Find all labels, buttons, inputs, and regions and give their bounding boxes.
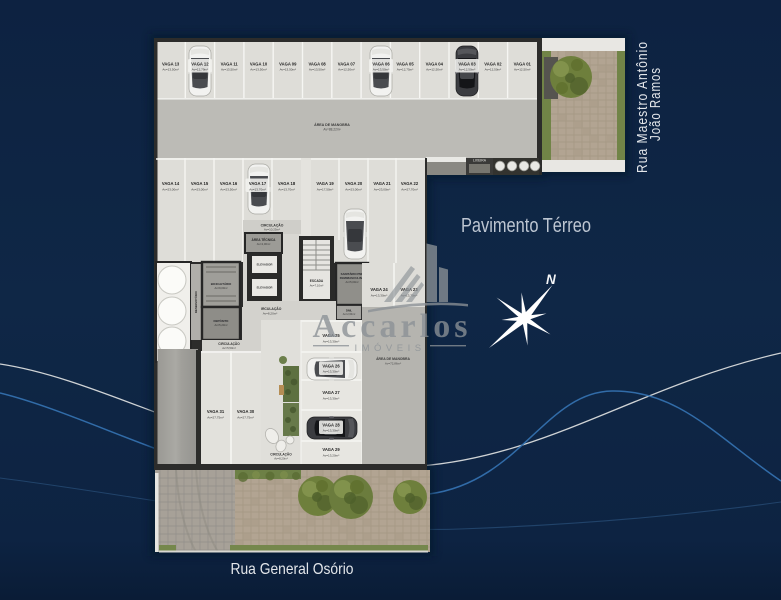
svg-text:VAGA 21: VAGA 21 bbox=[373, 181, 391, 186]
svg-text:Av=27,75m²: Av=27,75m² bbox=[237, 416, 253, 420]
svg-text:ELEVADOR: ELEVADOR bbox=[257, 263, 274, 267]
svg-text:Av=23,00m²: Av=23,00m² bbox=[345, 188, 361, 192]
svg-text:Av=12,50m²: Av=12,50m² bbox=[338, 68, 354, 72]
svg-text:VAGA 02: VAGA 02 bbox=[484, 62, 502, 67]
svg-text:João Ramos: João Ramos bbox=[648, 67, 664, 141]
svg-text:Av=88,22m²: Av=88,22m² bbox=[323, 128, 340, 132]
svg-text:VAGA 10: VAGA 10 bbox=[250, 62, 268, 67]
svg-text:VAGA 31: VAGA 31 bbox=[207, 409, 225, 414]
svg-text:Av=9,00m²: Av=9,00m² bbox=[214, 286, 227, 290]
svg-text:Av=13,50m²: Av=13,50m² bbox=[280, 68, 296, 72]
svg-text:Av=23,50m²: Av=23,50m² bbox=[220, 188, 236, 192]
svg-text:N: N bbox=[546, 272, 556, 287]
svg-text:CIRCULAÇÃO: CIRCULAÇÃO bbox=[259, 306, 282, 311]
svg-text:FEM/MASCULINO: FEM/MASCULINO bbox=[340, 276, 365, 280]
svg-text:DEPÓSITO: DEPÓSITO bbox=[214, 318, 230, 323]
svg-text:VAGA 29: VAGA 29 bbox=[322, 447, 340, 452]
svg-text:ÁREA DE MANOBRA: ÁREA DE MANOBRA bbox=[314, 122, 350, 127]
svg-text:BICICLETÁRIO: BICICLETÁRIO bbox=[211, 281, 232, 286]
svg-text:VAGA 06: VAGA 06 bbox=[372, 62, 390, 67]
svg-text:Av=13,30m²: Av=13,30m² bbox=[323, 397, 339, 401]
svg-text:Av=13,20m²: Av=13,20m² bbox=[323, 454, 339, 458]
svg-text:RESERVATÓRIO: RESERVATÓRIO bbox=[193, 290, 198, 313]
svg-text:VAGA 15: VAGA 15 bbox=[191, 181, 209, 186]
svg-text:Av=12,50m²: Av=12,50m² bbox=[459, 68, 475, 72]
svg-text:Av=12,50m²: Av=12,50m² bbox=[485, 68, 501, 72]
svg-text:Av=23,00m²: Av=23,00m² bbox=[191, 188, 207, 192]
svg-text:Av=5,00m²: Av=5,00m² bbox=[345, 280, 358, 284]
svg-text:VAGA 12: VAGA 12 bbox=[191, 62, 209, 67]
svg-text:VAGA 11: VAGA 11 bbox=[221, 62, 239, 67]
svg-text:Av=8,20m²: Av=8,20m² bbox=[263, 312, 278, 316]
svg-text:Av=27,70m²: Av=27,70m² bbox=[401, 188, 417, 192]
svg-text:Av=5,50m²: Av=5,50m² bbox=[222, 346, 236, 350]
svg-text:Pavimento Térreo: Pavimento Térreo bbox=[461, 215, 591, 237]
svg-text:VAGA 14: VAGA 14 bbox=[162, 181, 180, 186]
svg-text:Av=27,75m²: Av=27,75m² bbox=[207, 416, 223, 420]
svg-text:VAGA 03: VAGA 03 bbox=[458, 62, 476, 67]
svg-text:Av=72,86m²: Av=72,86m² bbox=[385, 362, 401, 366]
svg-text:LIXEIRA: LIXEIRA bbox=[473, 159, 487, 163]
svg-text:Av=12,79m²: Av=12,79m² bbox=[192, 68, 208, 72]
svg-text:Av=10,25m²: Av=10,25m² bbox=[264, 228, 280, 232]
svg-text:VAGA 13: VAGA 13 bbox=[162, 62, 180, 67]
svg-text:Av=2,00m²: Av=2,00m² bbox=[257, 242, 271, 246]
svg-text:VAGA 24: VAGA 24 bbox=[370, 287, 388, 292]
svg-text:Av=13,30m²: Av=13,30m² bbox=[323, 429, 339, 433]
svg-text:Av=13,70m²: Av=13,70m² bbox=[278, 188, 294, 192]
svg-text:VAGA 07: VAGA 07 bbox=[338, 62, 356, 67]
svg-text:Av=23,00m²: Av=23,00m² bbox=[374, 188, 390, 192]
svg-text:VAGA 28: VAGA 28 bbox=[322, 423, 340, 428]
svg-text:Av=13,50m²: Av=13,50m² bbox=[162, 68, 178, 72]
svg-text:Av=13,50m²: Av=13,50m² bbox=[309, 68, 325, 72]
svg-text:Av=13,50m²: Av=13,50m² bbox=[250, 68, 266, 72]
svg-text:VAGA 17: VAGA 17 bbox=[249, 181, 267, 186]
svg-text:VAGA 18: VAGA 18 bbox=[278, 181, 296, 186]
svg-text:VAGA 20: VAGA 20 bbox=[345, 181, 363, 186]
svg-text:Av=8,20m²: Av=8,20m² bbox=[274, 457, 288, 461]
svg-text:Av=5,20m²: Av=5,20m² bbox=[214, 323, 227, 327]
svg-text:Av=13,50m²: Av=13,50m² bbox=[221, 68, 237, 72]
svg-text:VAGA 08: VAGA 08 bbox=[308, 62, 326, 67]
svg-text:VAGA 30: VAGA 30 bbox=[237, 409, 255, 414]
svg-text:Av=13,30m²: Av=13,30m² bbox=[371, 294, 387, 298]
svg-text:VAGA 04: VAGA 04 bbox=[426, 62, 444, 67]
svg-text:VAGA 22: VAGA 22 bbox=[401, 181, 419, 186]
svg-text:Rua General Osório: Rua General Osório bbox=[231, 561, 354, 578]
svg-text:Accarlos: Accarlos bbox=[313, 308, 468, 345]
svg-text:Av=12,50m²: Av=12,50m² bbox=[514, 68, 530, 72]
svg-text:Av=12,50m²: Av=12,50m² bbox=[426, 68, 442, 72]
svg-text:VAGA 19: VAGA 19 bbox=[316, 181, 334, 186]
svg-text:ESCADA: ESCADA bbox=[310, 279, 324, 283]
svg-text:Av=17,50m²: Av=17,50m² bbox=[317, 188, 333, 192]
svg-text:ELEVADOR: ELEVADOR bbox=[257, 286, 274, 290]
svg-text:Av=13,50m²: Av=13,50m² bbox=[373, 68, 389, 72]
svg-text:Av=23,00m²: Av=23,00m² bbox=[162, 188, 178, 192]
svg-text:VAGA 16: VAGA 16 bbox=[220, 181, 238, 186]
svg-text:VAGA 01: VAGA 01 bbox=[514, 62, 532, 67]
svg-text:IMÓVEIS: IMÓVEIS bbox=[354, 343, 425, 354]
svg-text:VAGA 27: VAGA 27 bbox=[322, 390, 340, 395]
svg-text:VAGA 09: VAGA 09 bbox=[279, 62, 297, 67]
svg-text:VAGA 05: VAGA 05 bbox=[396, 62, 414, 67]
svg-text:ÁREA DE MANOBRA: ÁREA DE MANOBRA bbox=[376, 356, 410, 361]
svg-text:VAGA 26: VAGA 26 bbox=[322, 364, 340, 369]
svg-text:Av=13,70m²: Av=13,70m² bbox=[249, 188, 265, 192]
svg-text:Av=12,75m²: Av=12,75m² bbox=[397, 68, 413, 72]
svg-text:Av=13,30m²: Av=13,30m² bbox=[323, 370, 339, 374]
svg-text:Av=7,10m²: Av=7,10m² bbox=[310, 284, 324, 288]
